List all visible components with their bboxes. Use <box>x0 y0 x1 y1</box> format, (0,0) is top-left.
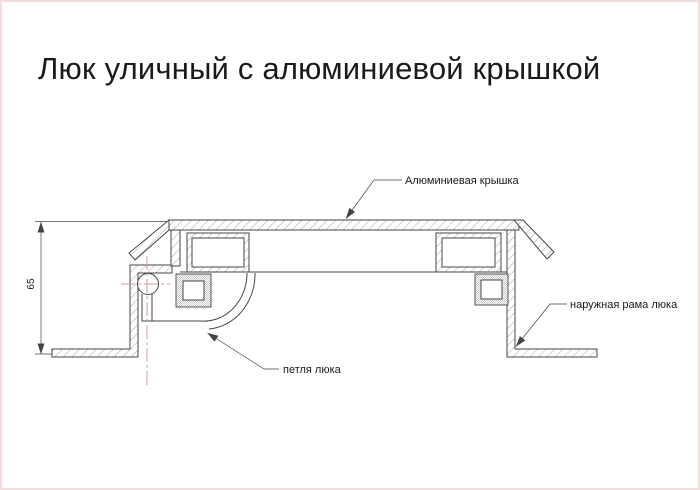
drawing-sheet: Люк уличный с алюминиевой крышкой 65 <box>0 0 700 490</box>
frame-right-profile <box>507 230 597 357</box>
callout-hinge: петля люка <box>208 333 342 376</box>
cover-top-sheet <box>169 220 519 230</box>
callout-hinge-label: петля люка <box>283 364 342 376</box>
cover-right-slope <box>514 220 554 259</box>
callout-frame-label: наружная рама люка <box>570 299 678 311</box>
hinge-swing-arc-outer <box>209 273 255 329</box>
cover-left-slope <box>129 220 169 260</box>
callout-frame: наружная рама люка <box>516 299 678 347</box>
cover-tube-right-inner <box>442 238 495 267</box>
callout-cover-leader <box>346 180 402 219</box>
square-tubes <box>176 274 508 307</box>
callout-hinge-leader <box>208 333 280 369</box>
cover-tube-left-inner <box>192 238 244 267</box>
square-tube-right-inner <box>481 280 502 299</box>
callout-cover: Алюминиевая крышка <box>346 175 519 219</box>
callout-cover-label: Алюминиевая крышка <box>405 175 519 187</box>
dimension-value: 65 <box>26 278 37 290</box>
section-drawing: 65 <box>2 2 700 490</box>
cover-left-lip <box>171 230 180 266</box>
callout-frame-leader <box>516 304 567 347</box>
frame-right <box>507 230 597 357</box>
square-tube-left-inner <box>183 281 204 300</box>
aluminum-cover <box>129 220 554 272</box>
